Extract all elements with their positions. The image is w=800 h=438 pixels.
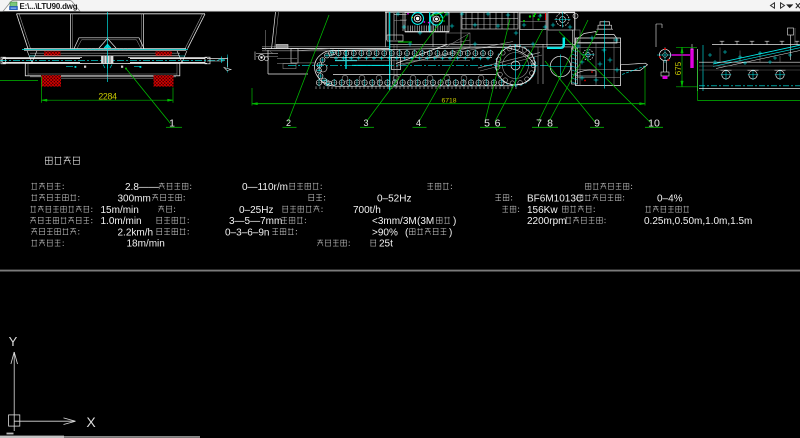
svg-text:18m/min: 18m/min	[127, 239, 165, 250]
svg-text:2.8——: 2.8——	[125, 182, 159, 193]
svg-text:9: 9	[594, 117, 600, 129]
svg-text:3: 3	[363, 118, 368, 128]
svg-text:675: 675	[674, 61, 683, 75]
svg-text:8: 8	[547, 117, 553, 129]
svg-text:(3M: (3M	[417, 216, 434, 227]
svg-text:156Kw: 156Kw	[527, 205, 558, 216]
svg-text:0.25m,0.50m,1.0m,1.5m: 0.25m,0.50m,1.0m,1.5m	[644, 216, 752, 227]
svg-text:0—110r/m: 0—110r/m	[242, 182, 288, 193]
svg-text:<3mm/3M: <3mm/3M	[372, 216, 417, 227]
svg-text:0–3–6–9n: 0–3–6–9n	[225, 227, 270, 238]
svg-text:1: 1	[169, 117, 175, 129]
svg-text:0–52Hz: 0–52Hz	[377, 193, 411, 204]
svg-text:2: 2	[286, 118, 291, 128]
svg-text:700t/h: 700t/h	[353, 205, 381, 216]
svg-text:5: 5	[484, 117, 490, 129]
svg-text:1.0m/min: 1.0m/min	[101, 216, 142, 227]
svg-text:6: 6	[495, 117, 501, 129]
svg-text:2284: 2284	[98, 91, 117, 101]
svg-text:2200rpm: 2200rpm	[527, 216, 566, 227]
svg-text:3—5—7mm: 3—5—7mm	[229, 216, 282, 227]
svg-text:): )	[453, 216, 456, 227]
svg-text:BF6M1013C: BF6M1013C	[527, 193, 583, 204]
svg-text:4: 4	[416, 118, 421, 128]
svg-text:300mm: 300mm	[118, 193, 151, 204]
svg-text:10: 10	[648, 117, 660, 129]
svg-text:2.2km/h: 2.2km/h	[118, 227, 154, 238]
svg-text:15m/min: 15m/min	[101, 205, 139, 216]
svg-text:Y: Y	[9, 334, 18, 349]
svg-text:0–4%: 0–4%	[657, 193, 683, 204]
svg-text:7: 7	[536, 117, 542, 129]
svg-text:6718: 6718	[441, 98, 456, 105]
svg-text:>90%: >90%	[372, 227, 398, 238]
svg-text:X: X	[86, 414, 96, 430]
svg-text:0–25Hz: 0–25Hz	[239, 205, 273, 216]
svg-text:25t: 25t	[379, 239, 393, 250]
svg-text:): )	[449, 227, 452, 238]
svg-text:E:\...\LTU90.dwg: E:\...\LTU90.dwg	[20, 2, 78, 11]
